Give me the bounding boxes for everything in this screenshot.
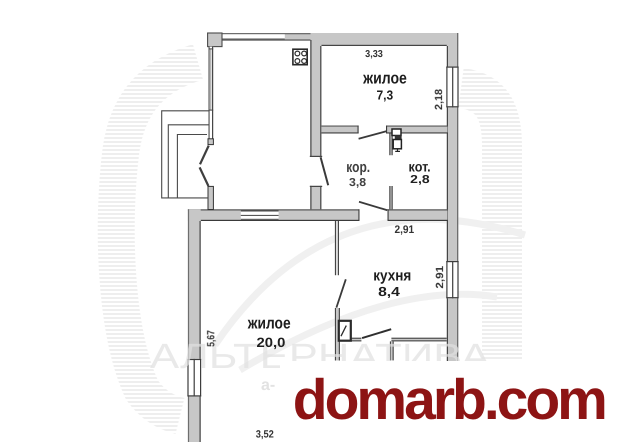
svg-text:2,91: 2,91: [394, 224, 414, 236]
svg-text:5,67: 5,67: [205, 330, 217, 347]
svg-text:3,52: 3,52: [256, 428, 274, 440]
svg-text:7,3: 7,3: [376, 87, 393, 102]
svg-text:2,8: 2,8: [410, 174, 430, 186]
svg-text:domarb.com: domarb.com: [293, 368, 605, 432]
svg-text:3,33: 3,33: [365, 49, 383, 60]
svg-text:2,91: 2,91: [434, 266, 446, 289]
svg-text:кухня: кухня: [373, 268, 411, 285]
svg-text:2,18: 2,18: [433, 89, 445, 110]
svg-text:а-: а-: [261, 377, 275, 394]
svg-text:жилое: жилое: [362, 70, 407, 88]
svg-text:кот.: кот.: [409, 158, 431, 174]
svg-text:кор.: кор.: [346, 159, 370, 176]
svg-text:20,0: 20,0: [257, 335, 286, 350]
svg-text:жилое: жилое: [247, 315, 291, 333]
svg-text:3,8: 3,8: [349, 177, 367, 189]
svg-text:8,4: 8,4: [378, 284, 401, 299]
